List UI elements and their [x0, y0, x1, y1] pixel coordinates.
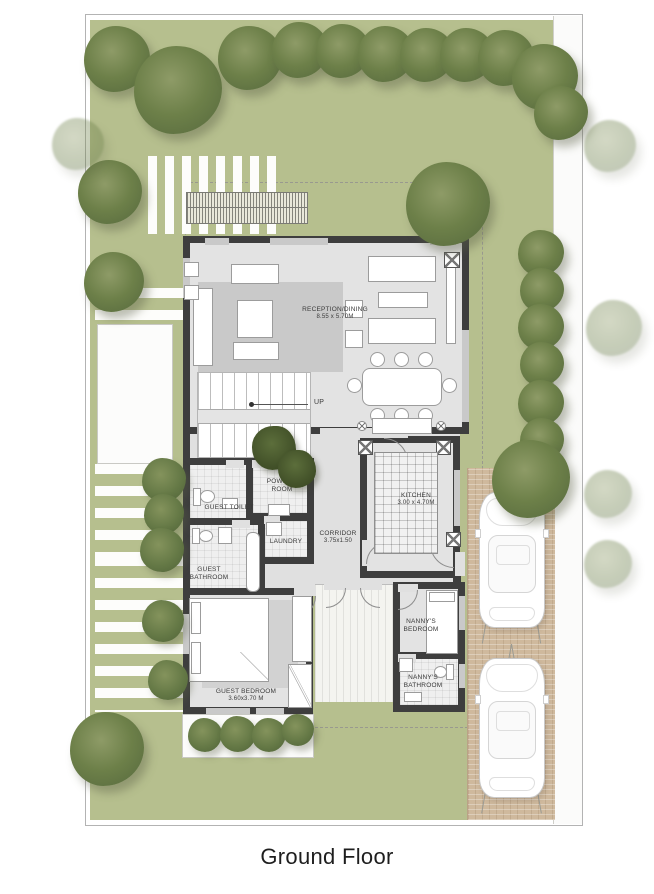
car-mirror	[475, 529, 481, 538]
window	[459, 664, 465, 688]
room-name: RECEPTION/DINING	[293, 306, 377, 314]
dining-table	[362, 368, 442, 406]
room-name: KITCHEN	[384, 492, 448, 500]
column-marker	[357, 421, 367, 431]
washing-machine	[266, 522, 282, 536]
room-label-nanny-bedroom: NANNY'S BEDROOM	[396, 618, 446, 635]
pillow	[191, 602, 201, 634]
room-name: GUEST TOILET	[197, 504, 261, 512]
room-dims: 3.60x3.70 M	[203, 696, 289, 704]
car-mirror	[475, 695, 481, 704]
car-sunroof	[496, 545, 530, 565]
column-marker	[446, 532, 461, 547]
room-dims: 3.00 x 4.70M	[384, 500, 448, 508]
room-label-nanny-bathroom: NANNY'S BATHROOM	[396, 674, 450, 691]
tree	[586, 300, 642, 356]
room-label-kitchen: KITCHEN 3.00 x 4.70M	[384, 492, 448, 508]
room-name: GUEST BATHROOM	[186, 566, 232, 583]
sofa	[368, 256, 436, 282]
deck-trellis	[186, 192, 308, 224]
room-label-guest-toilet: GUEST TOILET	[197, 504, 261, 512]
room-label-laundry: LAUNDRY	[264, 538, 308, 546]
window	[205, 238, 229, 245]
paved-pad	[97, 324, 173, 464]
indoor-plant	[278, 450, 316, 488]
sofa	[233, 342, 279, 360]
sink	[218, 527, 232, 544]
room-label-guest-bedroom: GUEST BEDROOM 3.60x3.70 M	[203, 688, 289, 704]
car-mirror	[543, 529, 549, 538]
stair-direction-line	[252, 404, 308, 405]
side-table	[184, 262, 199, 277]
room-name: LAUNDRY	[264, 538, 308, 546]
window	[459, 596, 465, 630]
corner-desk	[288, 664, 312, 708]
door-opening	[294, 588, 316, 596]
room-label-guest-bathroom: GUEST BATHROOM	[186, 566, 232, 583]
sink	[268, 504, 290, 516]
toilet	[200, 490, 215, 503]
window	[462, 330, 469, 422]
room-dims: 8.55 x 5.70M	[293, 314, 377, 322]
room-label-corridor: CORRIDOR 3.75x1.50	[312, 530, 364, 546]
column-marker	[358, 440, 373, 455]
room-label-reception: RECEPTION/DINING 8.55 x 5.70M	[293, 306, 377, 322]
car-tail	[489, 607, 535, 621]
pillow	[429, 592, 455, 602]
toilet	[199, 530, 213, 542]
room-name: NANNY'S BATHROOM	[396, 674, 450, 691]
floor-plan-page: UP	[0, 0, 654, 894]
window	[454, 470, 460, 526]
room-name: GUEST BEDROOM	[203, 688, 289, 696]
door-opening	[455, 552, 465, 576]
console	[446, 258, 456, 344]
column-marker	[436, 440, 451, 455]
stairs-up-label: UP	[310, 398, 328, 407]
page-title: Ground Floor	[0, 844, 654, 870]
kitchen-counter	[372, 418, 432, 434]
side-table	[184, 285, 199, 300]
coffee-table	[378, 292, 428, 308]
door-opening	[226, 460, 244, 468]
deck-trellis-line	[186, 207, 308, 208]
tree	[584, 470, 632, 518]
sink	[404, 692, 422, 702]
blanket-fold	[240, 652, 268, 680]
stair-landing	[198, 409, 310, 424]
sofa	[231, 264, 279, 284]
bathtub	[246, 532, 260, 592]
pillow	[191, 642, 201, 674]
car	[479, 658, 545, 798]
stair-direction-dot	[249, 402, 254, 407]
sofa	[368, 318, 436, 344]
coffee-table	[237, 300, 273, 338]
side-table	[345, 330, 363, 348]
car-hood	[486, 664, 538, 692]
column-marker	[436, 421, 446, 431]
window	[270, 238, 328, 245]
room-name: NANNY'S BEDROOM	[396, 618, 446, 635]
dining-chair	[418, 352, 433, 367]
column-marker	[444, 252, 460, 268]
tree	[584, 120, 636, 172]
dining-chair	[394, 352, 409, 367]
shower-tray	[399, 658, 413, 672]
car-tail	[489, 777, 535, 791]
room-name: CORRIDOR	[312, 530, 364, 538]
door-opening	[232, 520, 250, 528]
wardrobe	[292, 596, 312, 662]
room-dims: 3.75x1.50	[312, 538, 364, 546]
tree	[584, 540, 632, 588]
car-sunroof	[496, 711, 530, 731]
car-mirror	[543, 695, 549, 704]
dining-chair	[370, 352, 385, 367]
